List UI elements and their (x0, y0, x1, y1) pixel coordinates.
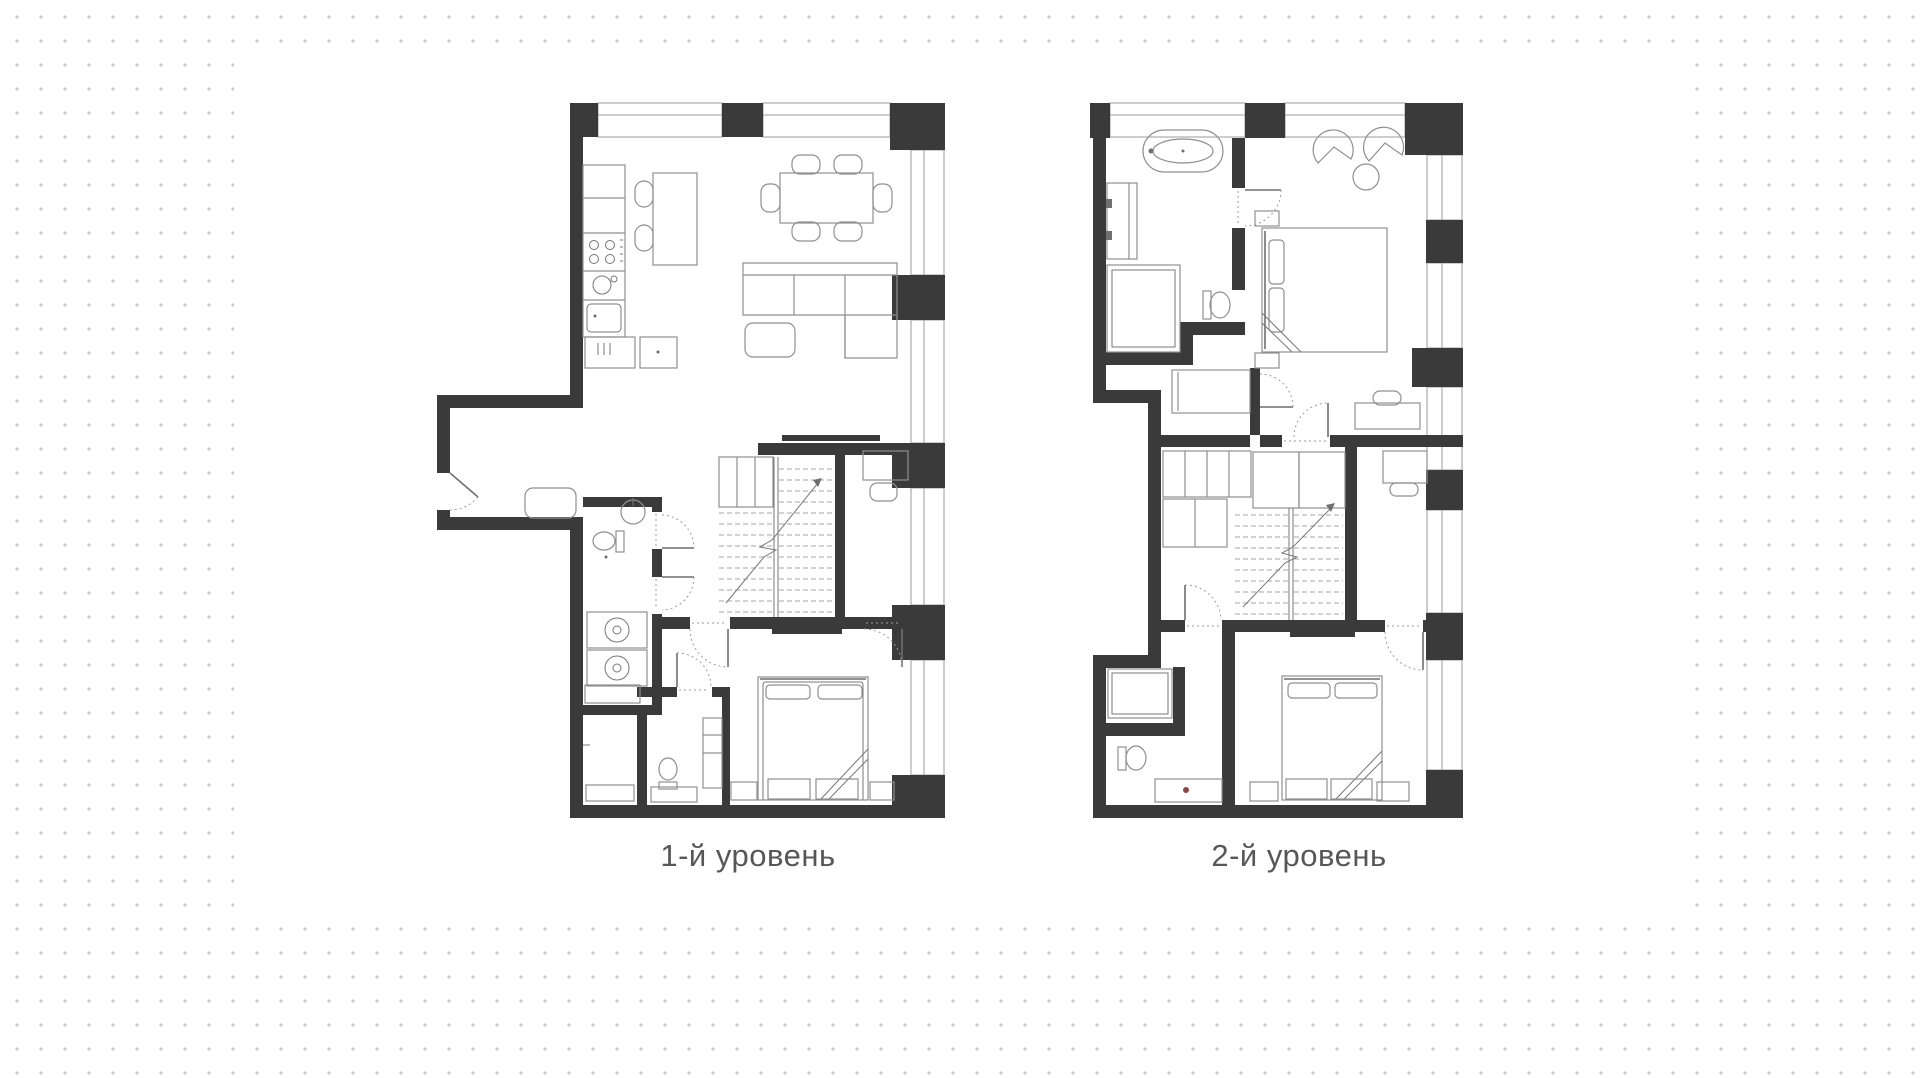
floorplan-level-1 (430, 85, 960, 825)
level2-label-text: 2-й уровень (1211, 838, 1386, 873)
level1-walls (437, 103, 945, 818)
level2-bedroom-bottom (1250, 626, 1423, 801)
coffee-table (745, 323, 795, 357)
level1-entry (450, 473, 576, 518)
level2-walls (1090, 103, 1463, 818)
level2-bathroom-bottom (1108, 585, 1222, 802)
level1-kitchen-counter (583, 165, 677, 368)
level1-kitchen-island (635, 173, 697, 265)
page: { "canvas": {"width": 1920, "height": 10… (0, 0, 1920, 1078)
floorplan-level-2 (1085, 85, 1475, 825)
stairs-direction-arrow (726, 483, 818, 603)
level2-bathroom-top (1106, 130, 1230, 352)
level2-wardrobes (1163, 451, 1251, 547)
level1-wc (593, 498, 694, 559)
entry-bench (525, 488, 576, 518)
faucet-accent (1183, 787, 1189, 793)
level1-label: 1-й уровень (560, 838, 936, 874)
level1-stairs (719, 457, 833, 617)
desk (1355, 403, 1420, 429)
level1-closet (583, 745, 634, 801)
level1-dining-table (761, 155, 892, 241)
level1-sofa (743, 263, 897, 358)
level2-label: 2-й уровень (1111, 838, 1487, 874)
level1-label-text: 1-й уровень (660, 838, 835, 873)
level2-study (1383, 451, 1427, 496)
level2-bedroom-top (1238, 127, 1420, 429)
